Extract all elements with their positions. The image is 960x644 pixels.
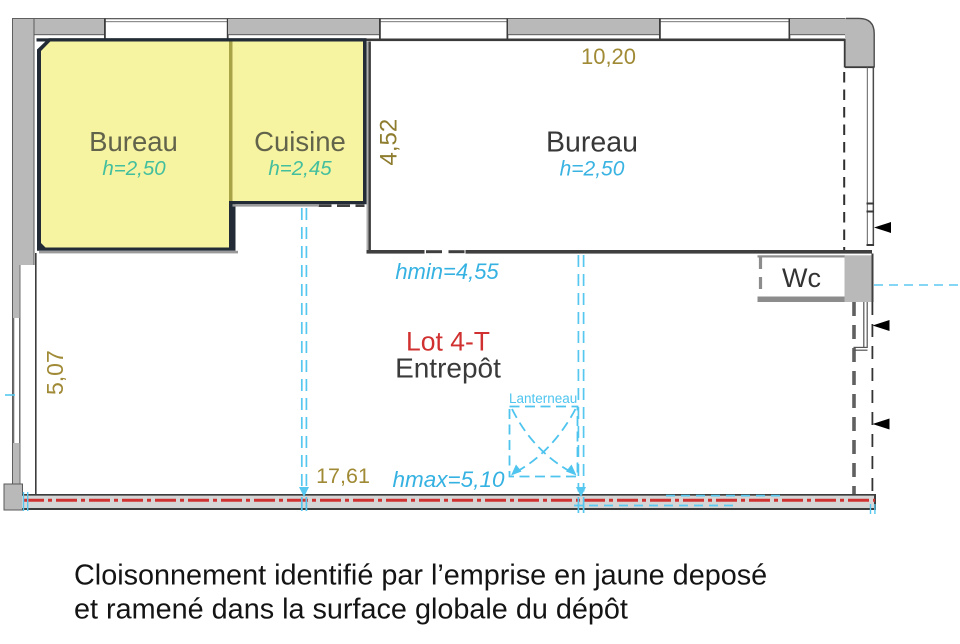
svg-text:h=2,50: h=2,50 — [102, 157, 166, 180]
svg-text:hmin=4,55: hmin=4,55 — [395, 259, 499, 284]
svg-text:h=2,45: h=2,45 — [268, 157, 332, 180]
svg-text:5,07: 5,07 — [42, 350, 68, 395]
svg-text:Lanterneau: Lanterneau — [509, 391, 577, 406]
svg-text:Wc: Wc — [782, 263, 821, 293]
svg-text:17,61: 17,61 — [316, 464, 370, 488]
svg-text:Bureau: Bureau — [89, 126, 178, 157]
svg-text:hmax=5,10: hmax=5,10 — [393, 467, 505, 492]
svg-text:Cuisine: Cuisine — [254, 126, 346, 157]
svg-text:4,52: 4,52 — [376, 119, 403, 166]
svg-text:et ramené dans la surface glob: et ramené dans la surface globale du dép… — [74, 594, 628, 626]
svg-text:Bureau: Bureau — [546, 127, 638, 159]
svg-text:Cloisonnement identifié par l’: Cloisonnement identifié par l’emprise en… — [74, 560, 767, 592]
svg-text:Entrepôt: Entrepôt — [395, 353, 501, 384]
svg-text:10,20: 10,20 — [581, 44, 636, 69]
svg-text:h=2,50: h=2,50 — [560, 158, 625, 181]
